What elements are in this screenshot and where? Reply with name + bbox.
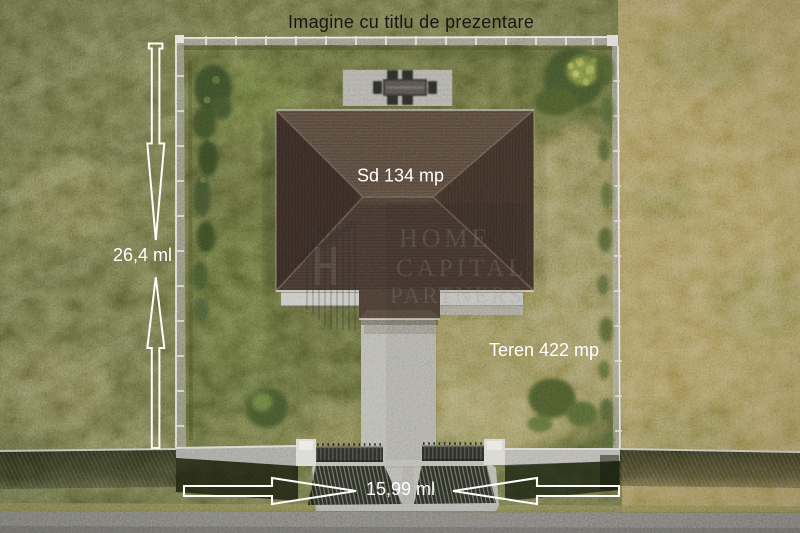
svg-text:Imagine cu titlu de prezentare: Imagine cu titlu de prezentare	[288, 12, 534, 32]
svg-text:26,4 ml: 26,4 ml	[113, 245, 172, 265]
svg-text:15,99 ml: 15,99 ml	[366, 479, 435, 499]
svg-text:Sd 134 mp: Sd 134 mp	[357, 166, 444, 186]
svg-text:Teren 422 mp: Teren 422 mp	[489, 340, 599, 360]
